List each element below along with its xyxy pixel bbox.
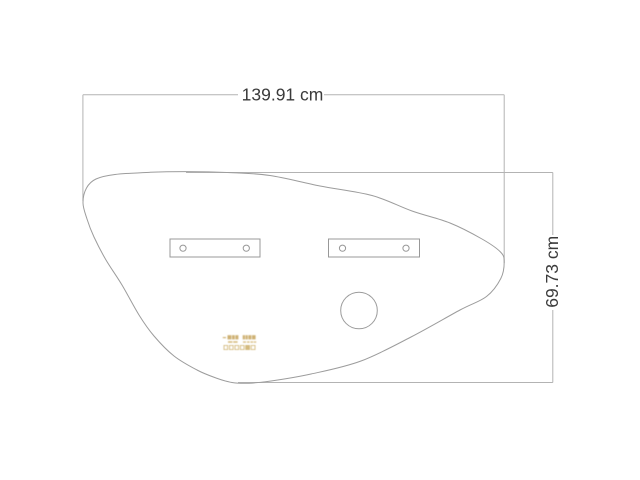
svg-text:69.73 cm: 69.73 cm	[542, 236, 562, 308]
svg-text:139.91 cm: 139.91 cm	[242, 85, 324, 105]
